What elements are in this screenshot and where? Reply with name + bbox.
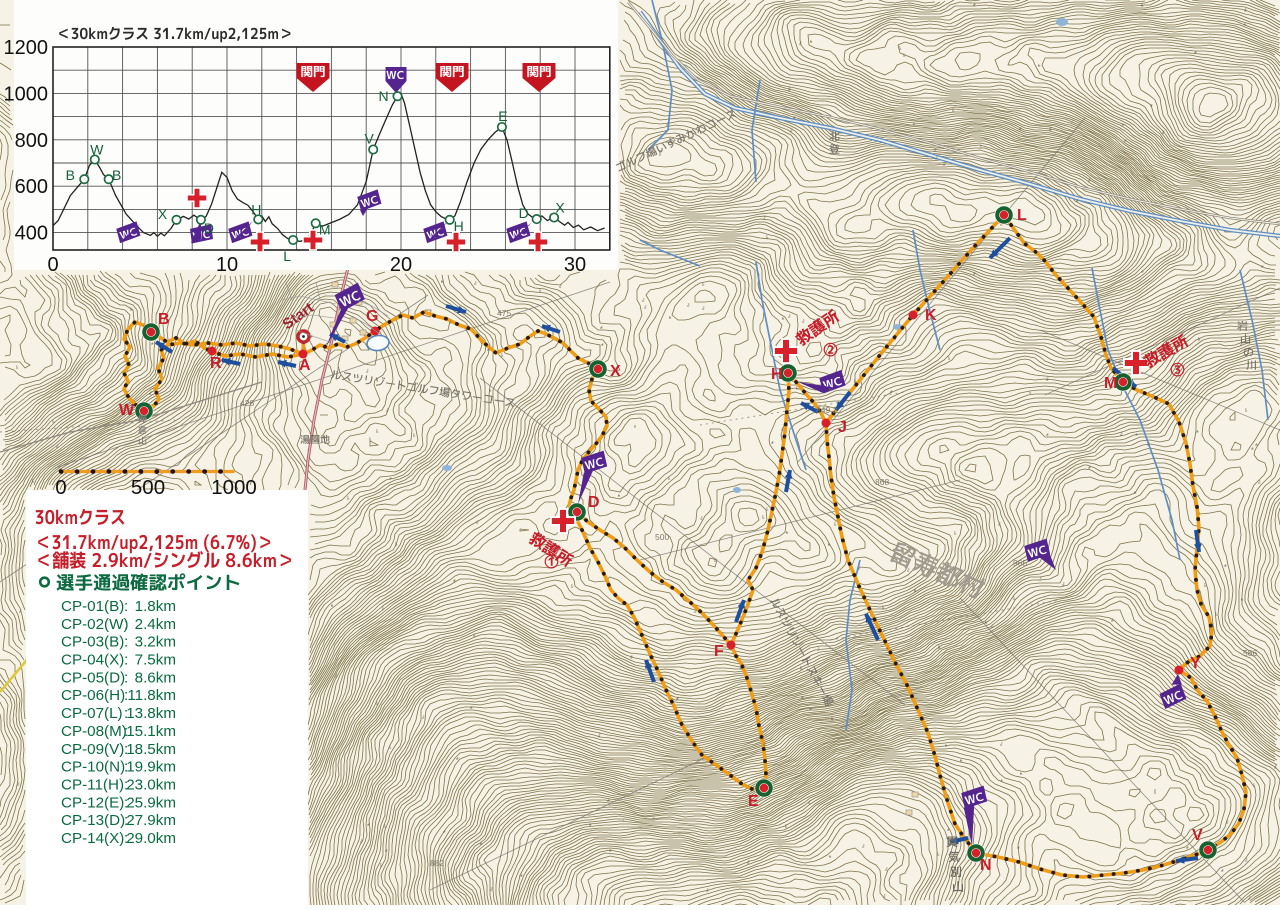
svg-text:M: M <box>1104 375 1117 392</box>
svg-text:H: H <box>454 218 464 234</box>
svg-text:882: 882 <box>430 858 444 868</box>
svg-text:L: L <box>283 248 291 264</box>
svg-text:428: 428 <box>240 398 254 408</box>
svg-text:868: 868 <box>875 477 889 487</box>
svg-text:18.5km: 18.5km <box>126 741 176 758</box>
svg-text:W: W <box>90 142 104 158</box>
svg-text:500: 500 <box>131 476 165 499</box>
svg-text:L: L <box>1017 207 1027 224</box>
svg-text:D: D <box>204 220 214 236</box>
svg-text:30: 30 <box>564 254 586 276</box>
svg-text::: : <box>124 598 128 615</box>
svg-text:X: X <box>610 363 621 380</box>
svg-text:CP-14(X): CP-14(X) <box>61 830 124 847</box>
svg-text:29.0km: 29.0km <box>126 830 176 847</box>
svg-text:CP-13(D): CP-13(D) <box>61 812 125 829</box>
svg-text::: : <box>124 669 128 686</box>
svg-text:15.1km: 15.1km <box>126 723 176 740</box>
svg-text:849.2: 849.2 <box>816 405 838 415</box>
svg-text:CP-04(X): CP-04(X) <box>61 652 124 669</box>
svg-text:K: K <box>925 307 937 324</box>
svg-text:1000: 1000 <box>4 83 49 105</box>
svg-text:13.8km: 13.8km <box>126 705 176 722</box>
svg-text:CP-09(V): CP-09(V) <box>61 741 124 758</box>
svg-text:E: E <box>498 108 507 124</box>
svg-text:E: E <box>748 793 759 810</box>
svg-text:X: X <box>158 206 168 222</box>
svg-text:B: B <box>158 311 170 328</box>
svg-text:CP-07(L): CP-07(L) <box>61 705 123 722</box>
svg-text:J: J <box>838 419 847 436</box>
svg-text:W: W <box>119 402 135 419</box>
svg-text:V: V <box>365 131 375 147</box>
svg-text:CP-03(B): CP-03(B) <box>61 634 124 651</box>
svg-text:586: 586 <box>1243 648 1257 658</box>
svg-text:CP-08(M): CP-08(M) <box>61 723 127 740</box>
svg-text::: : <box>124 634 128 651</box>
svg-text:1.8km: 1.8km <box>135 598 176 615</box>
svg-text:N: N <box>378 88 388 104</box>
svg-text:10: 10 <box>216 254 238 276</box>
svg-text:27.9km: 27.9km <box>126 812 176 829</box>
svg-text:A: A <box>299 357 311 374</box>
svg-text:19.9km: 19.9km <box>126 759 176 776</box>
svg-text:CP-05(D): CP-05(D) <box>61 669 125 686</box>
svg-text:D: D <box>588 494 600 511</box>
svg-text:25.9km: 25.9km <box>126 794 176 811</box>
svg-text:7.5km: 7.5km <box>135 652 176 669</box>
svg-text:CP-01(B): CP-01(B) <box>61 598 124 615</box>
svg-text:475: 475 <box>497 308 511 318</box>
svg-text:11.8km: 11.8km <box>127 687 176 704</box>
svg-text:8.6km: 8.6km <box>135 669 176 686</box>
svg-text:G: G <box>366 308 378 325</box>
svg-text:V: V <box>1192 827 1203 844</box>
svg-text:500: 500 <box>655 532 669 542</box>
svg-text:D: D <box>519 205 529 221</box>
svg-text:CP-12(E): CP-12(E) <box>61 794 124 811</box>
svg-text:400: 400 <box>15 223 48 245</box>
svg-text:CP-10(N): CP-10(N) <box>61 759 125 776</box>
svg-text:2.4km: 2.4km <box>135 616 176 633</box>
svg-text:965: 965 <box>1013 558 1027 568</box>
svg-text::: : <box>124 616 128 633</box>
svg-text:1200: 1200 <box>4 37 49 59</box>
svg-text:CP-06(H): CP-06(H) <box>61 687 125 704</box>
svg-text:3.2km: 3.2km <box>135 634 176 651</box>
svg-text:20: 20 <box>390 254 412 276</box>
svg-text:CP-11(H): CP-11(H) <box>61 777 124 794</box>
svg-text:0: 0 <box>47 254 58 276</box>
svg-text:B: B <box>66 167 75 183</box>
svg-text:F: F <box>714 643 724 660</box>
svg-text:N: N <box>980 857 992 874</box>
svg-text:Y: Y <box>1190 655 1201 672</box>
svg-text:600: 600 <box>15 176 48 198</box>
svg-text:B: B <box>112 167 121 183</box>
svg-text::: : <box>124 652 128 669</box>
svg-text:0: 0 <box>55 476 66 499</box>
svg-text:X: X <box>555 200 565 216</box>
svg-text:M: M <box>319 221 331 237</box>
svg-text:800: 800 <box>15 130 48 152</box>
svg-text:23.0km: 23.0km <box>126 777 176 794</box>
svg-text:CP-02(W): CP-02(W) <box>61 616 129 633</box>
svg-text:R: R <box>210 355 222 372</box>
svg-text:H: H <box>771 366 783 383</box>
svg-text:H: H <box>251 201 261 217</box>
svg-text:1000: 1000 <box>211 476 257 499</box>
